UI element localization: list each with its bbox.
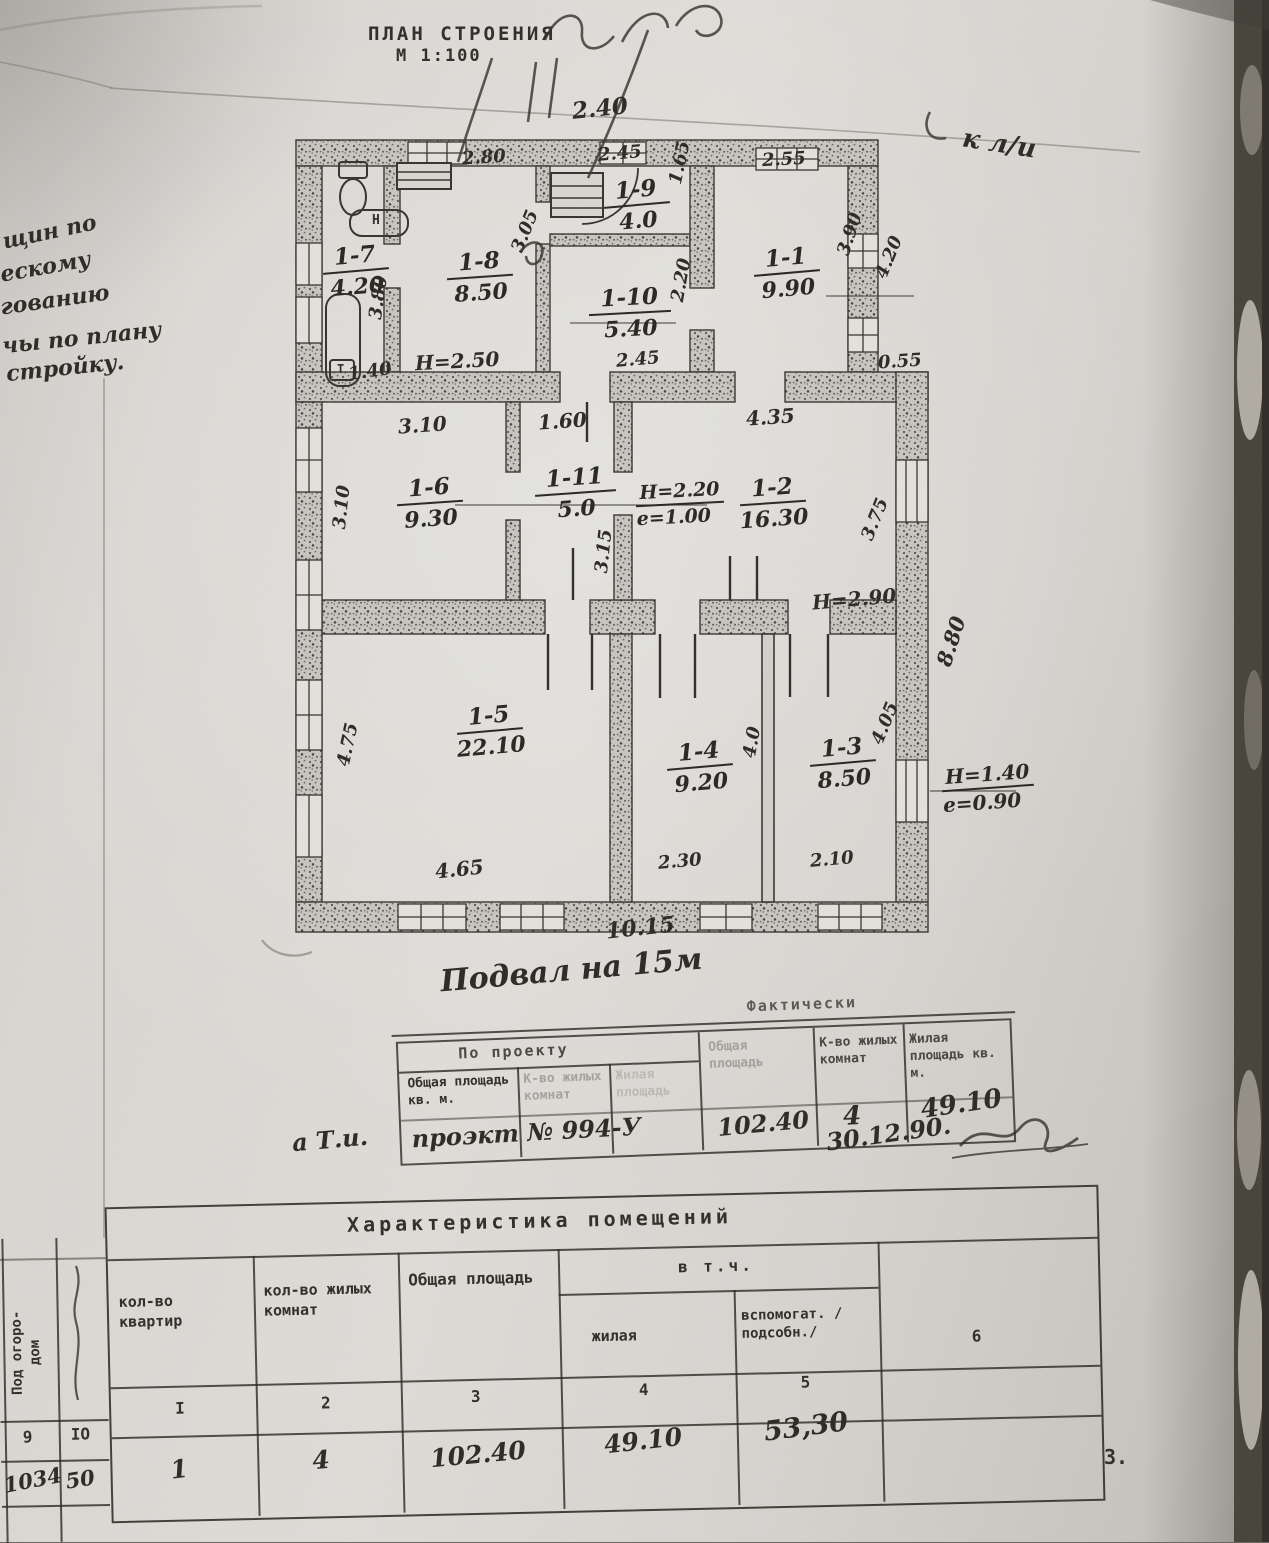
room-label-1-11: 1-115.0 xyxy=(526,461,625,525)
col5-header: вспомогат. /подсобн./ xyxy=(741,1304,867,1343)
col-living-area-actual: Жилая площадь кв. м. xyxy=(909,1028,1007,1082)
plan-scale: М 1:100 xyxy=(396,47,482,67)
left-partial-table: Под огоро-дом 9 IO 1034 50 xyxy=(0,1237,111,1543)
left-val-50: 50 xyxy=(64,1465,97,1493)
height-note-2-50: Н=2.50 xyxy=(414,348,499,375)
dim-2-10: 2.10 xyxy=(809,848,854,872)
colnum-3: 3 xyxy=(471,1388,481,1407)
colnum-4: 4 xyxy=(639,1381,649,1400)
col-living-area: Жилая площадь xyxy=(615,1065,696,1102)
col6-number: 6 xyxy=(971,1327,981,1346)
left-val-1034: 1034 xyxy=(2,1463,64,1498)
val-auxiliary-area: 53,30 xyxy=(762,1406,850,1448)
col-living-rooms: К-во жилых комнат xyxy=(523,1069,606,1106)
col-living-rooms-actual: К-во жилых комнат xyxy=(819,1033,900,1070)
dim-2-30: 2.30 xyxy=(657,850,702,874)
col-total-area-actual: Общая площадь xyxy=(708,1036,809,1074)
val-living-area: 49.10 xyxy=(603,1423,684,1460)
dim-2-80: 2.80 xyxy=(461,146,506,170)
dim-1-60: 1.60 xyxy=(537,408,587,434)
col-total-area: Общая площадь кв. м. xyxy=(407,1072,516,1110)
dim-3-10-top: 3.10 xyxy=(397,412,447,438)
characteristics-table: Характеристика помещений в т.ч. кол-во к… xyxy=(105,1185,1106,1523)
boiler-letter: Н xyxy=(372,214,380,229)
colnum-1: I xyxy=(175,1400,185,1419)
room-label-1-8: 1-88.50 xyxy=(423,244,537,310)
hw-total-area: 102.40 xyxy=(716,1106,810,1142)
left-colnum-10: IO xyxy=(71,1425,91,1444)
dim-2-55: 2.55 xyxy=(761,149,806,172)
plan-title: ПЛАН СТРОЕНИЯ xyxy=(368,24,556,46)
table-title: Характеристика помещений xyxy=(347,1205,732,1237)
val-total-area: 102.40 xyxy=(429,1437,527,1474)
col-header-project: По проекту xyxy=(458,1041,569,1062)
col1-header: кол-во квартир xyxy=(118,1290,239,1332)
colnum-5: 5 xyxy=(800,1373,810,1392)
col4-header: жилая xyxy=(591,1327,637,1345)
dim-2-45-bottom: 2.45 xyxy=(615,348,660,372)
tank-letter: Т xyxy=(337,363,344,377)
colnum-2: 2 xyxy=(321,1394,331,1413)
dim-0-55: 0.55 xyxy=(877,350,922,374)
opening-note-1-11: Н=2.20е=1.00 xyxy=(635,478,726,531)
room-label-1-2: 1-216.30 xyxy=(716,470,830,536)
summary-table: Фактически По проекту Общая площадь кв. … xyxy=(396,1018,1016,1166)
val-rooms: 4 xyxy=(311,1446,331,1476)
col-header-incl: в т.ч. xyxy=(678,1257,754,1277)
room-label-1-1: 1-19.90 xyxy=(730,239,845,306)
col3-header: Общая площадь xyxy=(408,1267,538,1291)
dim-2-45-top: 2.45 xyxy=(597,142,642,166)
opening-note-right: Н=1.40е=0.90 xyxy=(940,759,1036,817)
dim-4-35: 4.35 xyxy=(745,404,795,430)
page-number: 3. xyxy=(1104,1446,1128,1469)
room-label-1-6: 1-69.30 xyxy=(373,470,487,536)
left-colnum-9: 9 xyxy=(23,1428,33,1447)
col2-header: кол-во жилых комнат xyxy=(263,1279,384,1321)
left-col-header: Под огоро-дом xyxy=(7,1297,45,1408)
val-apartments: 1 xyxy=(169,1455,190,1486)
room-label-1-5: 1-522.10 xyxy=(423,696,558,765)
scanned-page: ПЛАН СТРОЕНИЯ М 1:100 щин по ескому гова… xyxy=(0,0,1269,1542)
